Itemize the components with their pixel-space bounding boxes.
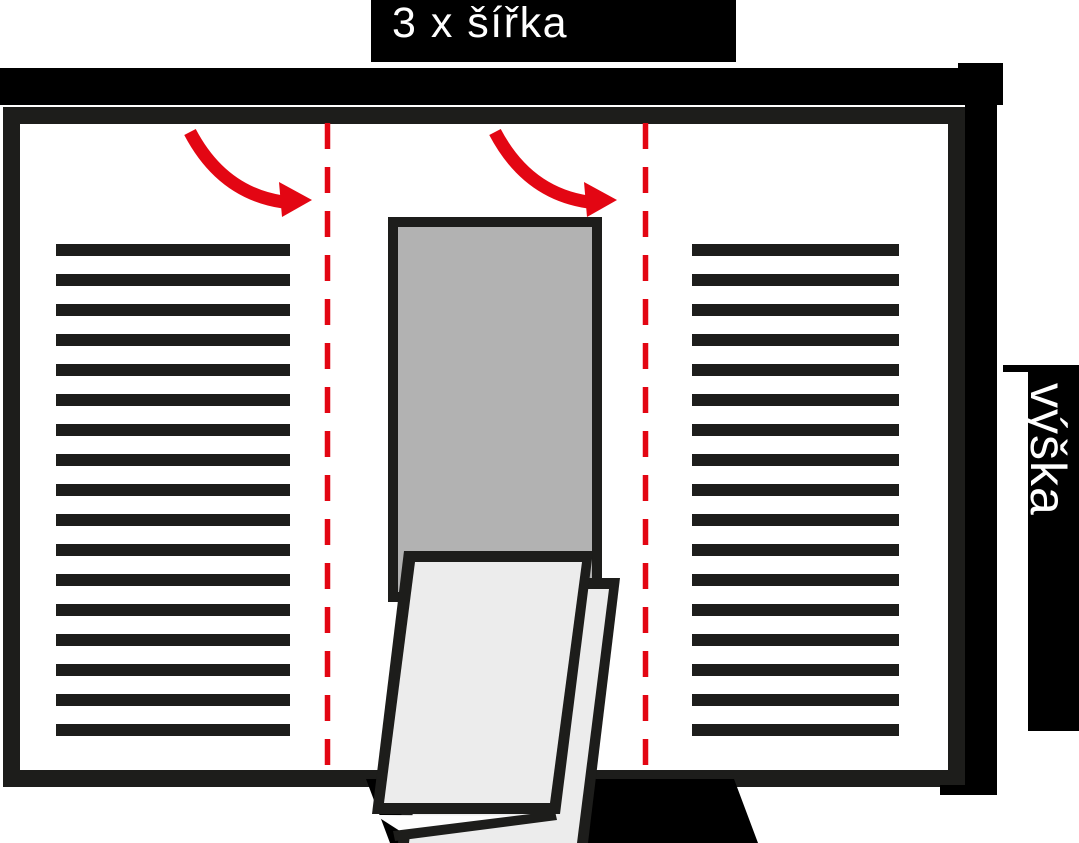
text-line <box>56 634 290 646</box>
height-bar <box>965 105 997 795</box>
text-line <box>692 514 899 526</box>
gray-panel-face <box>398 227 592 592</box>
width-label-text: 3 x šířka <box>392 0 568 47</box>
width-bar <box>0 68 1003 105</box>
text-line <box>56 514 290 526</box>
height-label-text: výška <box>1020 383 1076 516</box>
middle-gray-panel <box>388 217 602 602</box>
text-line <box>692 334 899 346</box>
text-line <box>692 694 899 706</box>
text-line <box>692 394 899 406</box>
text-line <box>56 274 290 286</box>
trifold-leaflet-diagram: 3 x šířka výška <box>0 0 1079 843</box>
height-label-tab <box>1003 365 1079 372</box>
text-line <box>56 334 290 346</box>
front-page-face <box>384 562 582 803</box>
text-line <box>56 304 290 316</box>
text-line <box>56 574 290 586</box>
text-line <box>56 394 290 406</box>
text-line <box>692 574 899 586</box>
text-line <box>56 424 290 436</box>
text-line <box>692 244 899 256</box>
text-line <box>692 304 899 316</box>
width-dimension-bar <box>0 63 1003 105</box>
text-line <box>692 274 899 286</box>
text-line <box>56 544 290 556</box>
text-line <box>692 544 899 556</box>
height-bar-end-cap <box>940 785 997 795</box>
diagram-canvas: 3 x šířka výška <box>0 0 1079 843</box>
text-line <box>692 724 899 736</box>
text-line <box>56 364 290 376</box>
text-line <box>692 484 899 496</box>
text-line <box>692 634 899 646</box>
width-bar-end-cap <box>958 63 1003 105</box>
text-line <box>692 424 899 436</box>
text-line <box>692 604 899 616</box>
text-line <box>56 604 290 616</box>
text-line <box>692 454 899 466</box>
text-line <box>692 664 899 676</box>
text-line <box>56 724 290 736</box>
text-line <box>692 364 899 376</box>
text-line <box>56 694 290 706</box>
text-line <box>56 454 290 466</box>
text-line <box>56 244 290 256</box>
text-line <box>56 484 290 496</box>
width-label: 3 x šířka <box>371 0 736 62</box>
text-line <box>56 664 290 676</box>
